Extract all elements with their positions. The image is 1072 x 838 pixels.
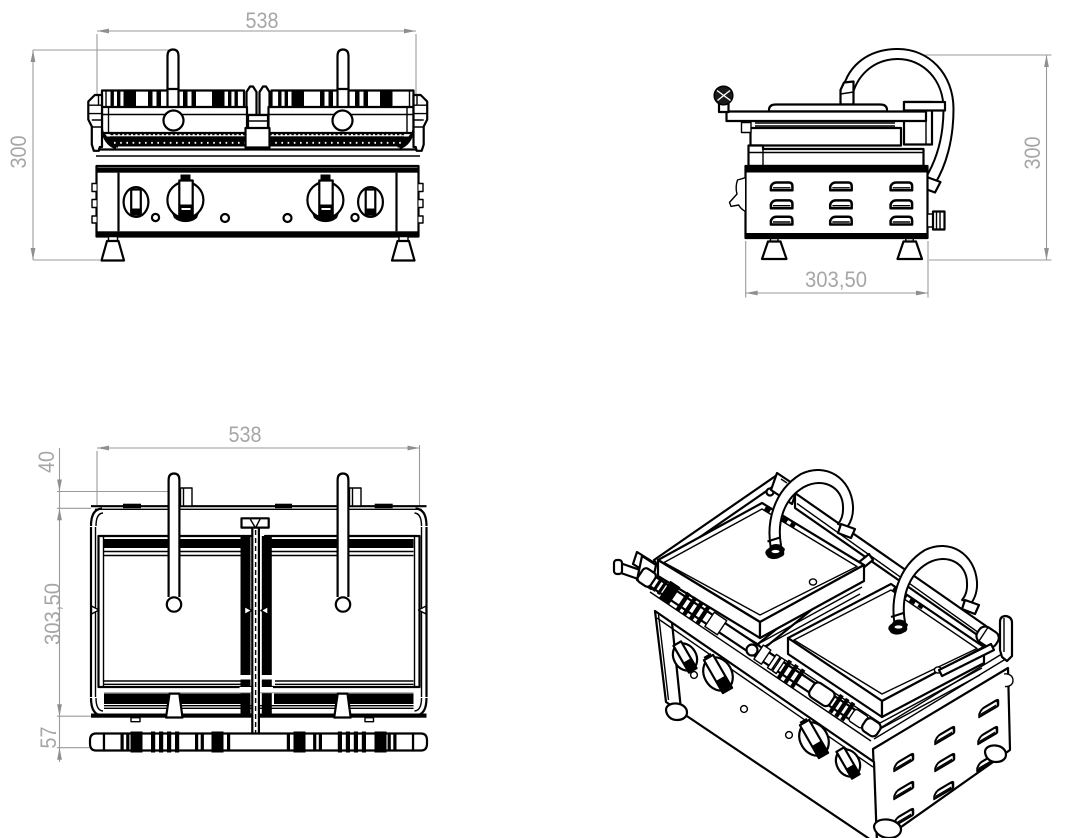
svg-text:300: 300	[1020, 137, 1045, 170]
svg-text:40: 40	[34, 451, 59, 473]
svg-text:303,50: 303,50	[805, 267, 867, 292]
svg-text:57: 57	[36, 727, 61, 749]
svg-text:300: 300	[6, 136, 31, 169]
svg-text:303,50: 303,50	[40, 583, 65, 645]
svg-text:538: 538	[229, 422, 262, 447]
svg-text:538: 538	[246, 8, 279, 33]
